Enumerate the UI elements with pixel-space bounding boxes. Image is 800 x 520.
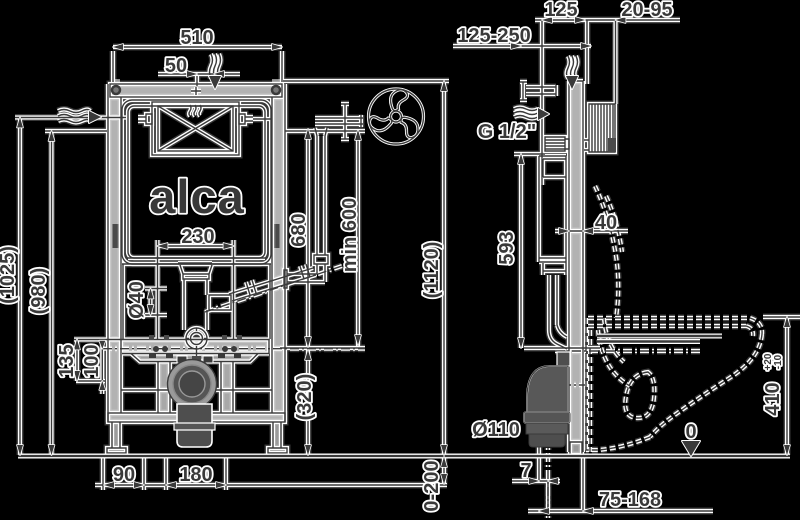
svg-text:0: 0	[685, 421, 696, 443]
svg-text:Ø40: Ø40	[126, 281, 148, 319]
svg-text:(980): (980)	[28, 268, 50, 315]
svg-text:50: 50	[165, 55, 187, 77]
svg-text:alca: alca	[149, 170, 244, 223]
svg-text:0-200: 0-200	[421, 460, 443, 511]
svg-text:7: 7	[520, 460, 531, 482]
svg-text:(1120): (1120)	[421, 242, 443, 299]
svg-text:-10: -10	[773, 354, 784, 369]
svg-text:G 1/2": G 1/2"	[478, 121, 536, 143]
svg-text:410: 410	[762, 382, 784, 415]
svg-text:135: 135	[56, 344, 78, 377]
svg-text:(1025): (1025)	[0, 246, 19, 304]
svg-text:680: 680	[288, 213, 310, 246]
svg-text:(320): (320)	[294, 374, 316, 421]
svg-text:100: 100	[81, 344, 103, 377]
svg-text:510: 510	[180, 27, 213, 49]
svg-text:593: 593	[496, 231, 518, 264]
svg-text:40: 40	[595, 212, 617, 234]
svg-text:Ø110: Ø110	[472, 419, 520, 441]
svg-text:20-95: 20-95	[621, 0, 672, 21]
svg-text:125: 125	[544, 0, 577, 21]
svg-text:75-168: 75-168	[599, 489, 661, 511]
svg-text:125-250: 125-250	[457, 25, 530, 47]
svg-text:230: 230	[181, 226, 214, 248]
svg-text:min 600: min 600	[339, 198, 361, 272]
svg-text:180: 180	[179, 464, 212, 486]
svg-text:90: 90	[113, 464, 135, 486]
